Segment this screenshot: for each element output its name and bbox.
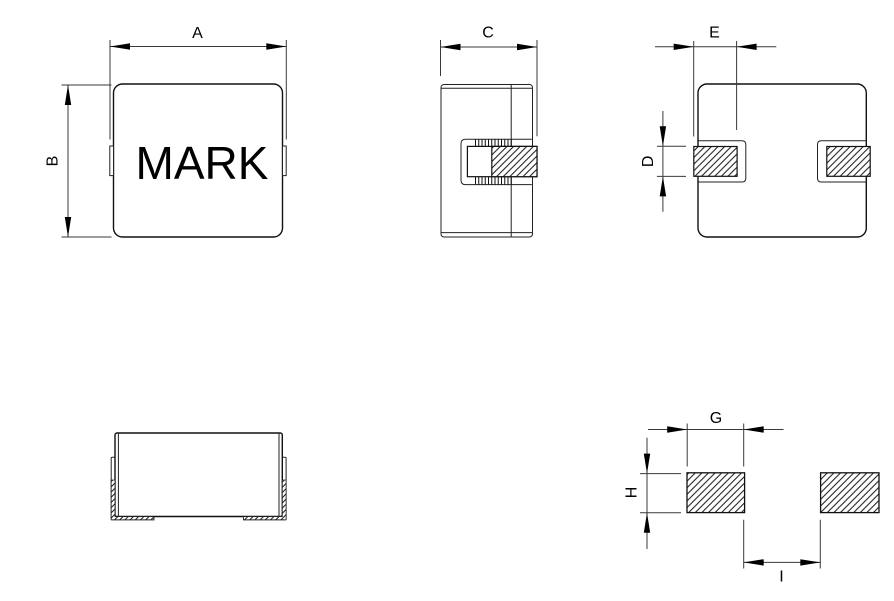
svg-text:C: C: [482, 25, 494, 42]
svg-text:G: G: [710, 410, 722, 427]
svg-text:E: E: [709, 25, 720, 42]
svg-text:D: D: [640, 156, 657, 168]
svg-text:A: A: [192, 25, 203, 42]
svg-text:B: B: [45, 156, 62, 167]
svg-text:I: I: [779, 569, 783, 586]
svg-text:H: H: [623, 487, 640, 499]
svg-text:MARK: MARK: [136, 137, 269, 189]
